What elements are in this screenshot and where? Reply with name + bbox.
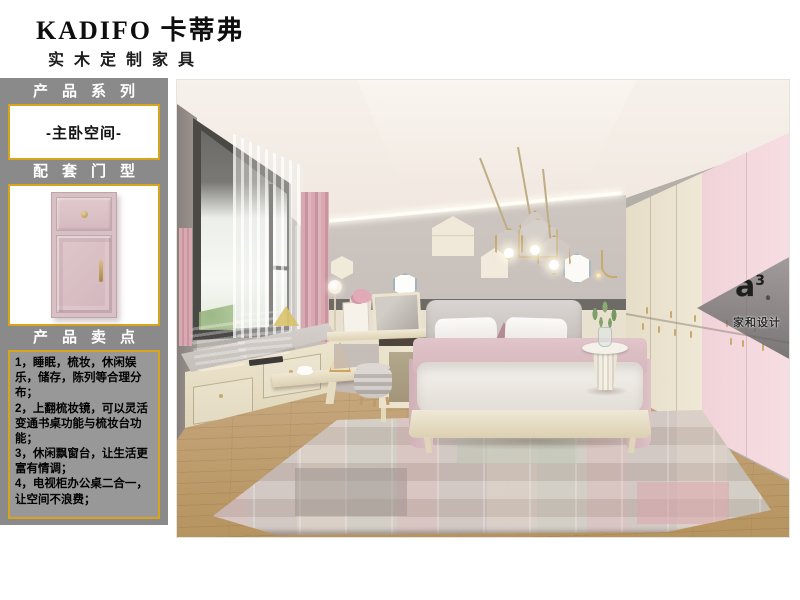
table-lamp-globe	[328, 280, 342, 294]
bedroom-photo: a3® 家和设计	[176, 79, 790, 538]
teacup	[297, 368, 313, 375]
ottoman-leg	[373, 399, 376, 407]
wardrobe-handle	[762, 344, 764, 351]
pink-curtain	[301, 192, 329, 342]
brand-tagline: 实木定制家具	[48, 46, 204, 70]
selling-point: 1，睡眠，梳妆，休闲娱乐，储存，陈列等合理分布；	[15, 356, 153, 402]
wall-lamp	[593, 250, 617, 290]
bed-frame	[408, 410, 652, 438]
door-panel	[56, 235, 112, 313]
sidebar: 产品系列 -主卧空间- 配套门型 产品卖点 1，睡眠，梳妆，休闲娱乐，储存，陈列…	[0, 78, 168, 525]
wall-lamp-arm	[601, 250, 617, 278]
pendant-bulb	[530, 245, 540, 255]
series-box: -主卧空间-	[8, 104, 160, 160]
selling-point: 2，上翻梳妆镜，可以灵活变通书桌功能与梳妆台功能；	[15, 402, 153, 448]
cabinet-door-image	[51, 192, 117, 318]
wardrobe-handle	[742, 340, 744, 347]
sheer-curtain	[233, 134, 303, 338]
seat-drawer-knob	[219, 394, 223, 398]
selling-point: 4，电视柜办公桌二合一，让空间不浪费；	[15, 477, 153, 507]
glass-vase	[598, 327, 612, 347]
selling-point: 3，休闲飘窗台，让生活更富有情调；	[15, 447, 153, 477]
wardrobe-handle	[670, 311, 672, 318]
door-drawer	[56, 197, 112, 231]
pendant-bulb	[504, 248, 514, 258]
wardrobe-handle	[730, 338, 732, 345]
vanity-leg	[381, 408, 386, 422]
wardrobe-handle	[658, 326, 660, 333]
designer-name: 家和设计	[733, 314, 781, 330]
pink-curtain-left	[179, 228, 192, 346]
points-heading: 产品卖点	[8, 326, 160, 350]
wardrobe-handle	[642, 323, 644, 330]
brand-logo: KADIFO 卡蒂弗	[36, 10, 245, 47]
registered-mark: ®	[765, 295, 771, 302]
page: KADIFO 卡蒂弗 实木定制家具 产品系列 -主卧空间- 配套门型 产品卖点 …	[0, 0, 800, 600]
series-value: -主卧空间-	[46, 122, 122, 143]
wardrobe-handle	[646, 307, 648, 314]
points-box: 1，睡眠，梳妆，休闲娱乐，储存，陈列等合理分布； 2，上翻梳妆镜，可以灵活变通书…	[8, 350, 160, 519]
pendant-bulb	[549, 260, 559, 270]
table-lamp-stem	[334, 293, 336, 331]
door-heading: 配套门型	[8, 160, 160, 184]
ottoman-top	[356, 363, 390, 372]
rug-patch	[295, 468, 407, 516]
rug-patch	[637, 482, 729, 524]
art-frame	[342, 302, 369, 335]
series-heading: 产品系列	[8, 80, 160, 104]
wardrobe-handle	[690, 331, 692, 338]
door-image-box	[8, 184, 160, 326]
wall-lamp-bulb	[595, 272, 602, 279]
wardrobe-handle	[694, 315, 696, 322]
wardrobe-handle	[674, 329, 676, 336]
a3-logo-sup: 3	[755, 273, 765, 289]
door-knob	[81, 211, 88, 218]
door-handle	[99, 260, 103, 282]
pink-flowers	[353, 289, 371, 303]
